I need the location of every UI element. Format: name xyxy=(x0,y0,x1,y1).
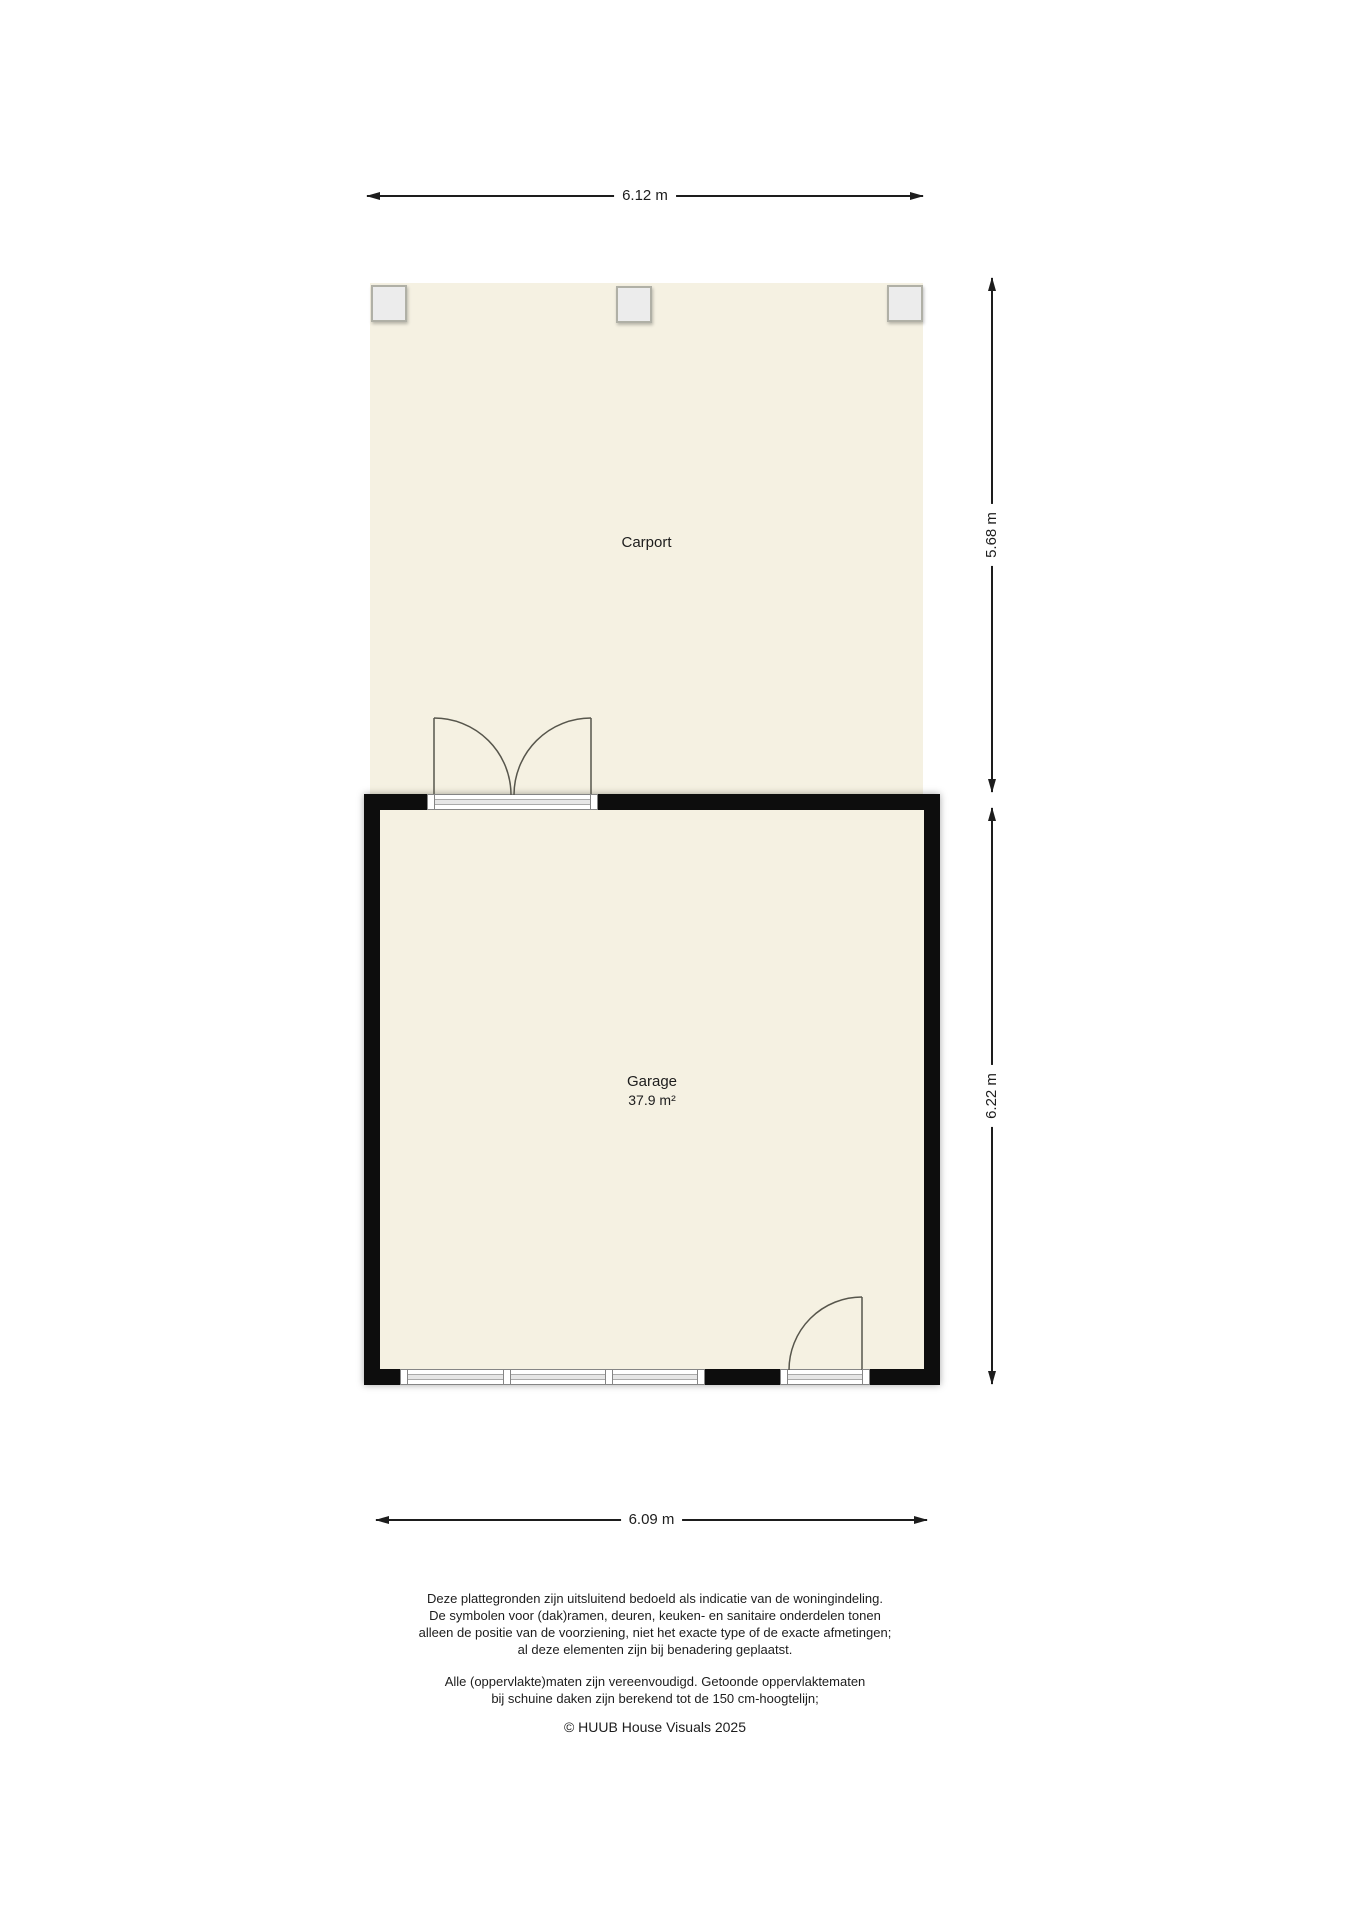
arrow-left-icon xyxy=(375,1516,389,1524)
arrow-right-icon xyxy=(914,1516,928,1524)
carport-post xyxy=(616,286,652,323)
entry-door-threshold xyxy=(781,1369,869,1385)
window-jamb xyxy=(697,1369,705,1385)
top-dimension-label: 6.12 m xyxy=(614,186,676,206)
carport-depth-label: 5.68 m xyxy=(982,504,1002,566)
door-jamb xyxy=(780,1369,788,1385)
threshold-lines xyxy=(781,1374,869,1380)
door-jamb xyxy=(862,1369,870,1385)
window-mullion xyxy=(503,1369,511,1385)
arrow-down-icon xyxy=(988,779,996,793)
disclaimer-line: bij schuine daken zijn berekend tot de 1… xyxy=(310,1690,1000,1707)
disclaimer-line: Deze plattegronden zijn uitsluitend bedo… xyxy=(310,1590,1000,1607)
disclaimer-line: alleen de positie van de voorziening, ni… xyxy=(310,1624,1000,1641)
window-jamb xyxy=(400,1369,408,1385)
garage-depth-label: 6.22 m xyxy=(982,1065,1002,1127)
arrow-down-icon xyxy=(988,1371,996,1385)
footer-text: Deze plattegronden zijn uitsluitend bedo… xyxy=(310,1590,1000,1736)
double-door-threshold xyxy=(428,794,597,810)
arrow-up-icon xyxy=(988,807,996,821)
disclaimer-line: al deze elementen zijn bij benadering ge… xyxy=(310,1641,1000,1658)
bottom-dimension-label: 6.09 m xyxy=(621,1510,683,1530)
door-jamb xyxy=(590,794,598,810)
disclaimer-line: De symbolen voor (dak)ramen, deuren, keu… xyxy=(310,1607,1000,1624)
arrow-right-icon xyxy=(910,192,924,200)
copyright-text: © HUUB House Visuals 2025 xyxy=(310,1719,1000,1736)
disclaimer-line: Alle (oppervlakte)maten zijn vereenvoudi… xyxy=(310,1673,1000,1690)
carport-area: Carport xyxy=(370,283,923,794)
arrow-left-icon xyxy=(366,192,380,200)
arrow-up-icon xyxy=(988,277,996,291)
window-mullion xyxy=(605,1369,613,1385)
garage-area: 37.9 m² xyxy=(364,1091,940,1109)
floorplan-canvas: 6.12 m Carport Garage 37.9 m² xyxy=(0,0,1358,1920)
garage-label: Garage 37.9 m² xyxy=(364,1073,940,1109)
carport-post xyxy=(887,285,923,322)
door-jamb xyxy=(427,794,435,810)
window-band xyxy=(401,1369,704,1385)
garage-name: Garage xyxy=(364,1073,940,1091)
carport-label: Carport xyxy=(370,534,923,552)
carport-post xyxy=(371,285,407,322)
threshold-lines xyxy=(428,799,597,805)
window-lines xyxy=(401,1374,704,1380)
